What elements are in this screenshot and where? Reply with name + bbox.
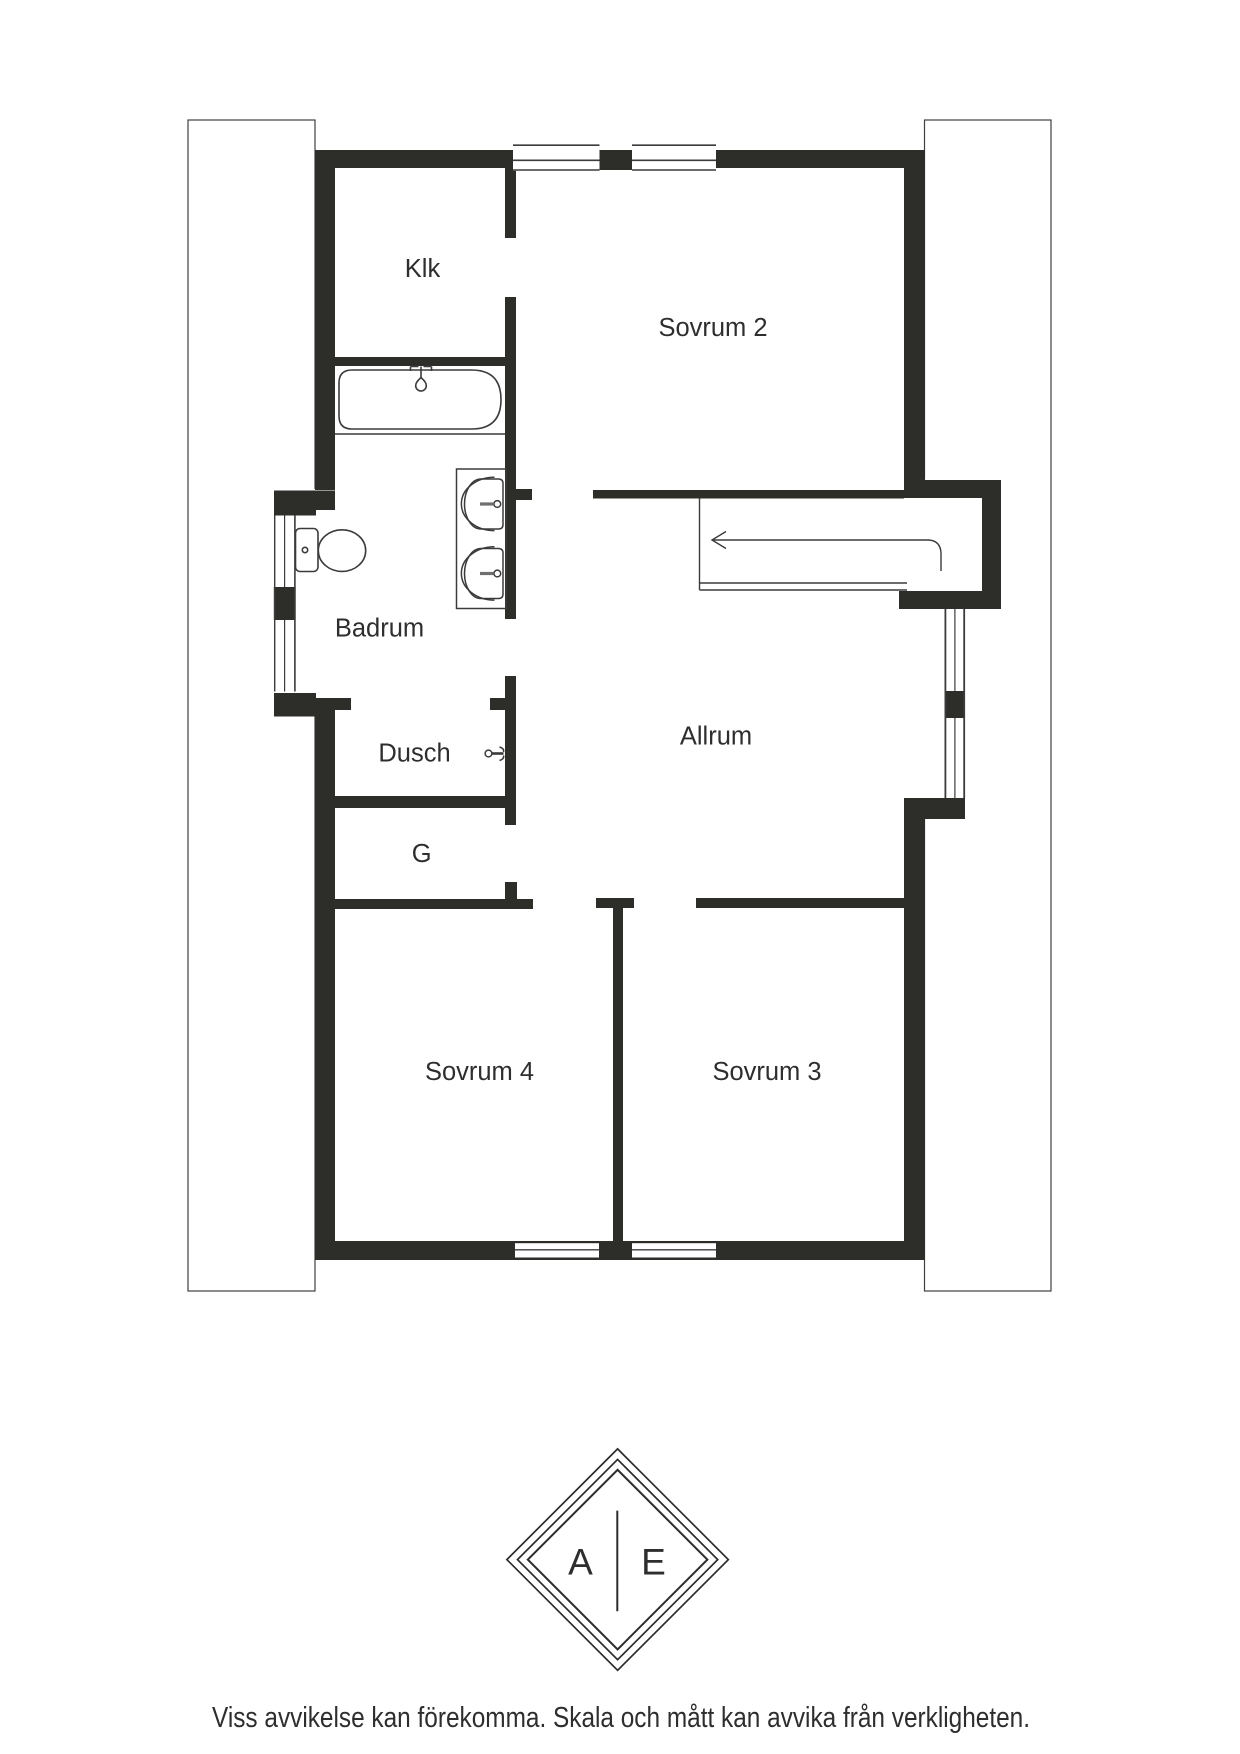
- svg-text:Sovrum 4: Sovrum 4: [425, 1058, 534, 1086]
- svg-text:E: E: [641, 1542, 666, 1583]
- svg-text:Sovrum 2: Sovrum 2: [658, 314, 767, 342]
- svg-text:Viss avvikelse kan förekomma.: Viss avvikelse kan förekomma. Skala och …: [212, 1702, 1030, 1734]
- svg-text:Sovrum 3: Sovrum 3: [712, 1058, 821, 1086]
- svg-text:Badrum: Badrum: [335, 615, 424, 643]
- svg-text:Allrum: Allrum: [680, 723, 752, 751]
- svg-text:A: A: [568, 1542, 593, 1583]
- svg-text:Dusch: Dusch: [378, 740, 450, 768]
- svg-text:Klk: Klk: [405, 255, 441, 283]
- svg-text:G: G: [412, 840, 432, 868]
